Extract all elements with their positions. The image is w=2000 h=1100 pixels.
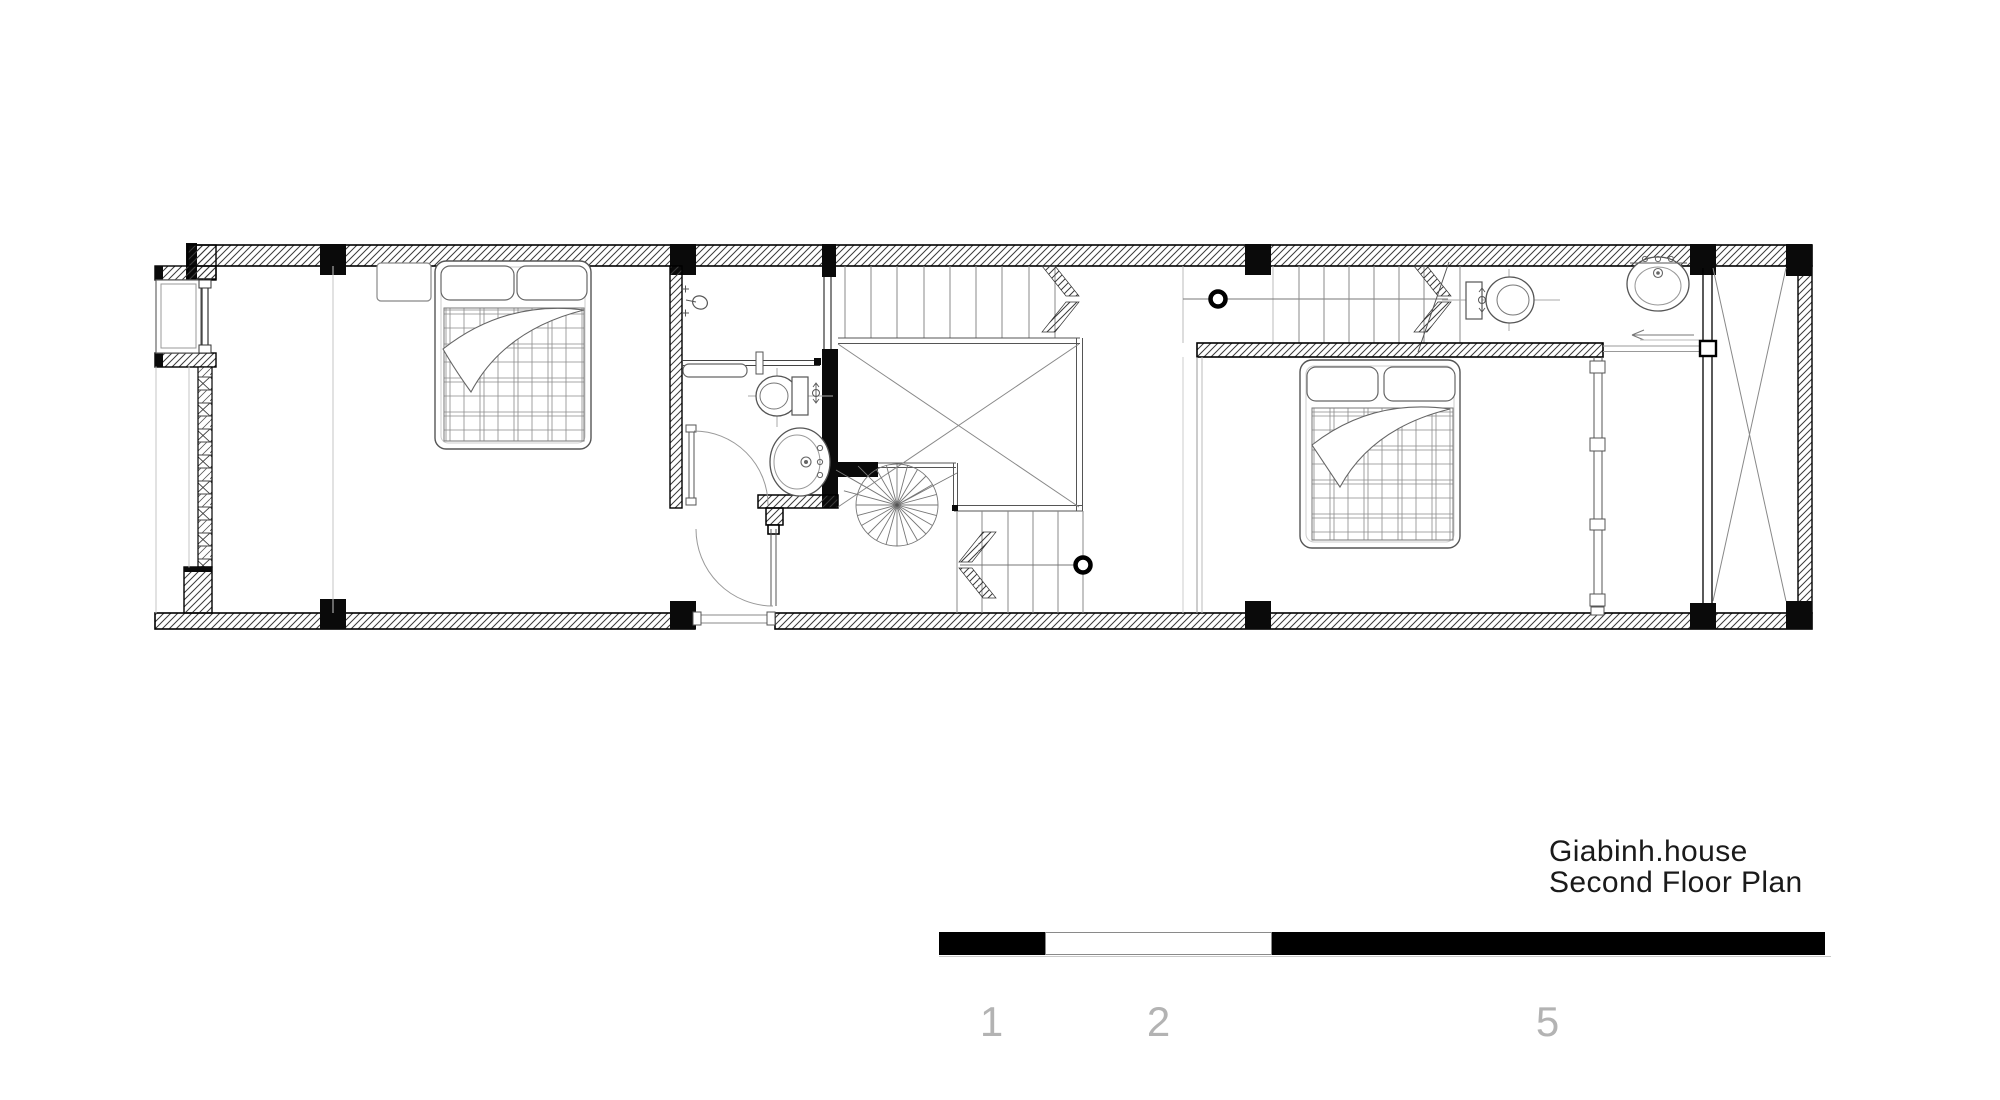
sink-symbol bbox=[770, 428, 830, 496]
sill-cap bbox=[155, 266, 163, 280]
project-title: Giabinh.house bbox=[1549, 836, 1869, 867]
bathroom-left-wall bbox=[670, 266, 682, 508]
wall-poche bbox=[822, 244, 836, 277]
pillow bbox=[441, 266, 514, 300]
sink-symbol bbox=[1627, 256, 1689, 311]
drawing-title: Second Floor Plan bbox=[1549, 867, 1869, 898]
bed-1 bbox=[435, 261, 591, 449]
bedroom-1 bbox=[377, 261, 591, 449]
lower-staircase bbox=[957, 511, 1091, 613]
towel-ledge bbox=[683, 364, 747, 377]
bedroom2-wall bbox=[1197, 343, 1603, 357]
floor-plan-sheet: Giabinh.house Second Floor Plan 1 2 5 bbox=[0, 0, 2000, 1100]
scale-label-2: 2 bbox=[1147, 998, 1171, 1046]
bay-window bbox=[156, 280, 201, 353]
stair-treads-flight1 bbox=[845, 266, 1055, 338]
partition-handle bbox=[756, 352, 763, 374]
entry-arrow bbox=[1632, 330, 1694, 340]
bathroom-1 bbox=[670, 244, 838, 625]
sliding-partition-right bbox=[1590, 357, 1605, 615]
toilet-symbol bbox=[748, 368, 833, 427]
scale-bar-shadow bbox=[939, 956, 1831, 957]
column bbox=[1786, 601, 1812, 629]
right-wall bbox=[1798, 266, 1812, 613]
title-block: Giabinh.house Second Floor Plan bbox=[1549, 836, 1869, 898]
scale-label-5: 5 bbox=[1536, 998, 1560, 1046]
pillow bbox=[1384, 367, 1455, 401]
column bbox=[1786, 244, 1812, 276]
top-wall bbox=[188, 245, 1812, 266]
pier-cap bbox=[184, 567, 212, 572]
door-saddle bbox=[697, 615, 771, 623]
scale-segment bbox=[1272, 932, 1825, 955]
toilet-tank bbox=[792, 377, 808, 415]
bathroom-door bbox=[686, 425, 768, 505]
stair-treads-flight2 bbox=[1299, 266, 1424, 343]
column bbox=[1245, 601, 1271, 629]
corner-wall-pier bbox=[184, 567, 212, 613]
hall-door bbox=[693, 529, 776, 625]
shower-head-symbol bbox=[682, 286, 709, 317]
door-jamb bbox=[768, 525, 779, 534]
threshold-line bbox=[1603, 346, 1702, 352]
window-sill-bottom bbox=[155, 353, 216, 367]
scale-segment bbox=[939, 932, 1045, 955]
door-swing-arc bbox=[696, 529, 773, 606]
louver-screen-wall bbox=[198, 367, 212, 567]
column bbox=[1690, 603, 1716, 629]
glazing-stop bbox=[199, 280, 211, 288]
scale-label-1: 1 bbox=[980, 998, 1004, 1046]
sill-cap bbox=[155, 353, 163, 367]
bottom-wall-left bbox=[155, 613, 695, 629]
bottom-wall-right bbox=[775, 613, 1812, 629]
stair-up-arrow bbox=[1042, 266, 1079, 332]
pillow bbox=[517, 266, 587, 300]
right-shaft bbox=[1700, 268, 1786, 603]
balcony-window bbox=[155, 266, 216, 613]
scale-bar bbox=[939, 932, 1825, 955]
bathroom-2 bbox=[1442, 256, 1712, 340]
window-sill-top bbox=[155, 266, 216, 280]
column bbox=[670, 601, 696, 629]
bathroom-right-wall bbox=[822, 349, 838, 508]
column bbox=[1245, 244, 1271, 275]
partition-end bbox=[814, 358, 821, 365]
newel-post bbox=[1076, 558, 1091, 573]
stair-treads bbox=[957, 511, 1083, 613]
partition-post bbox=[1700, 341, 1716, 356]
glazing-stop bbox=[199, 345, 211, 353]
scale-segment bbox=[1045, 932, 1272, 955]
door-jamb-wall bbox=[766, 508, 783, 525]
door-swing-arc bbox=[694, 431, 768, 505]
nightstand bbox=[377, 263, 431, 301]
wall-stub bbox=[835, 462, 878, 477]
bed-2 bbox=[1300, 360, 1460, 548]
newel-post bbox=[1211, 292, 1226, 307]
bedroom-2 bbox=[1183, 330, 1702, 615]
pillow bbox=[1307, 367, 1378, 401]
bathroom-bottom-wall bbox=[758, 495, 838, 508]
toilet-tank bbox=[1466, 282, 1482, 319]
floor-void bbox=[835, 338, 1083, 511]
